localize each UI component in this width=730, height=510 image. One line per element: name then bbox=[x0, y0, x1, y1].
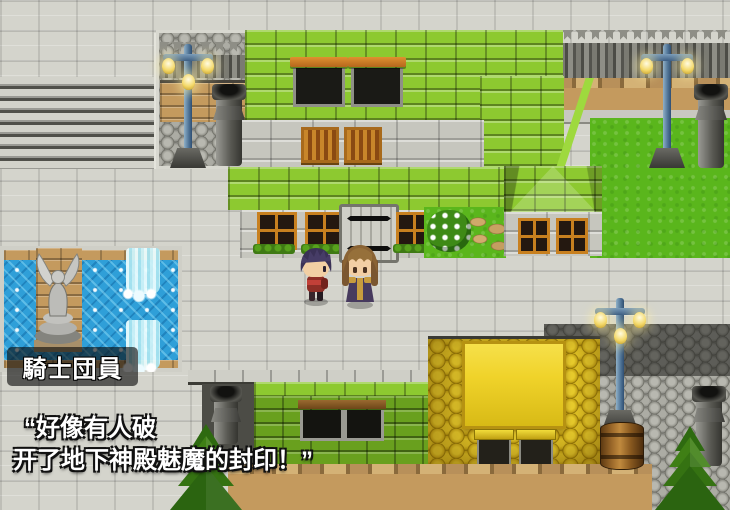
lamp-base bbox=[649, 148, 685, 168]
lamp-bulb bbox=[201, 58, 214, 74]
barrel bbox=[600, 422, 644, 470]
building-roof-right bbox=[480, 76, 564, 168]
lamp-bulb bbox=[182, 74, 195, 90]
roof-window bbox=[293, 68, 345, 107]
lamp-bulb bbox=[594, 312, 607, 328]
flower-bush bbox=[427, 210, 471, 252]
lamp-bulb bbox=[640, 58, 653, 74]
lamp-bulb bbox=[614, 328, 627, 344]
shuttered-window bbox=[301, 127, 339, 163]
lamp-pole bbox=[184, 44, 192, 166]
roof-window bbox=[344, 410, 384, 441]
stairs bbox=[0, 77, 158, 169]
dialog-text-line[interactable]: “好像有人破 bbox=[24, 414, 156, 444]
lower-building-roof-edge bbox=[254, 382, 432, 397]
roof-window bbox=[300, 410, 344, 441]
house-window bbox=[518, 218, 550, 254]
lamp-base bbox=[170, 148, 206, 168]
lamp-bulb bbox=[681, 58, 694, 74]
small-house-roof bbox=[504, 166, 602, 212]
game-viewport: 騎士団員 “好像有人破 开了地下神殿魅魔的封印！” bbox=[0, 0, 730, 510]
pine-tree bbox=[648, 424, 730, 510]
lamp-pole bbox=[663, 44, 671, 166]
speaker-name-label: 騎士団員 bbox=[7, 347, 138, 386]
shuttered-window bbox=[344, 127, 382, 163]
chimney bbox=[216, 84, 242, 166]
villager-npc[interactable] bbox=[340, 243, 380, 309]
dialog-text-line[interactable]: 开了地下神殿魅魔的封印！” bbox=[13, 446, 313, 476]
house-window bbox=[556, 218, 588, 254]
lamp-bulb bbox=[633, 312, 646, 328]
street-lamp bbox=[594, 290, 646, 430]
street-lamp bbox=[640, 36, 694, 168]
chimney bbox=[698, 84, 724, 168]
gold-building-rooftop bbox=[462, 341, 566, 429]
fountain-statue bbox=[28, 244, 88, 354]
lamp-pole bbox=[616, 298, 624, 428]
waterfall-foam bbox=[122, 288, 162, 302]
roof-window bbox=[351, 68, 403, 107]
knight-npc[interactable] bbox=[299, 246, 333, 306]
lamp-bulb bbox=[162, 58, 175, 74]
window-planter bbox=[253, 244, 295, 254]
street-lamp bbox=[162, 36, 214, 168]
